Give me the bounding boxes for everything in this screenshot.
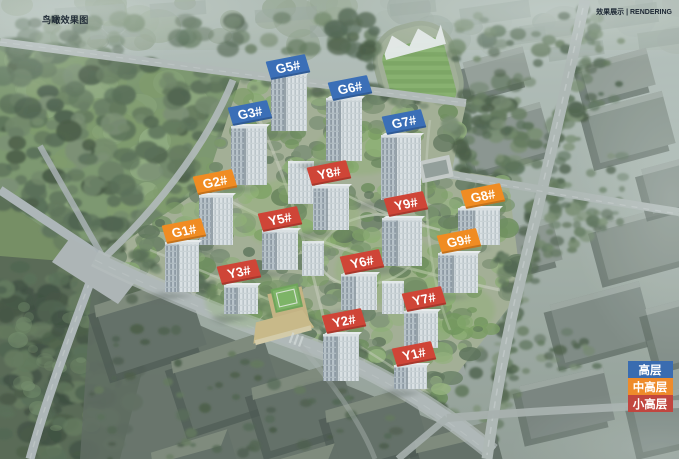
svg-text:高层: 高层: [639, 363, 662, 377]
svg-text:效果展示 | RENDERING: 效果展示 | RENDERING: [596, 7, 672, 16]
svg-text:鸟瞰效果图: 鸟瞰效果图: [42, 14, 89, 25]
svg-text:小高层: 小高层: [632, 397, 668, 411]
svg-text:中高层: 中高层: [633, 380, 668, 394]
